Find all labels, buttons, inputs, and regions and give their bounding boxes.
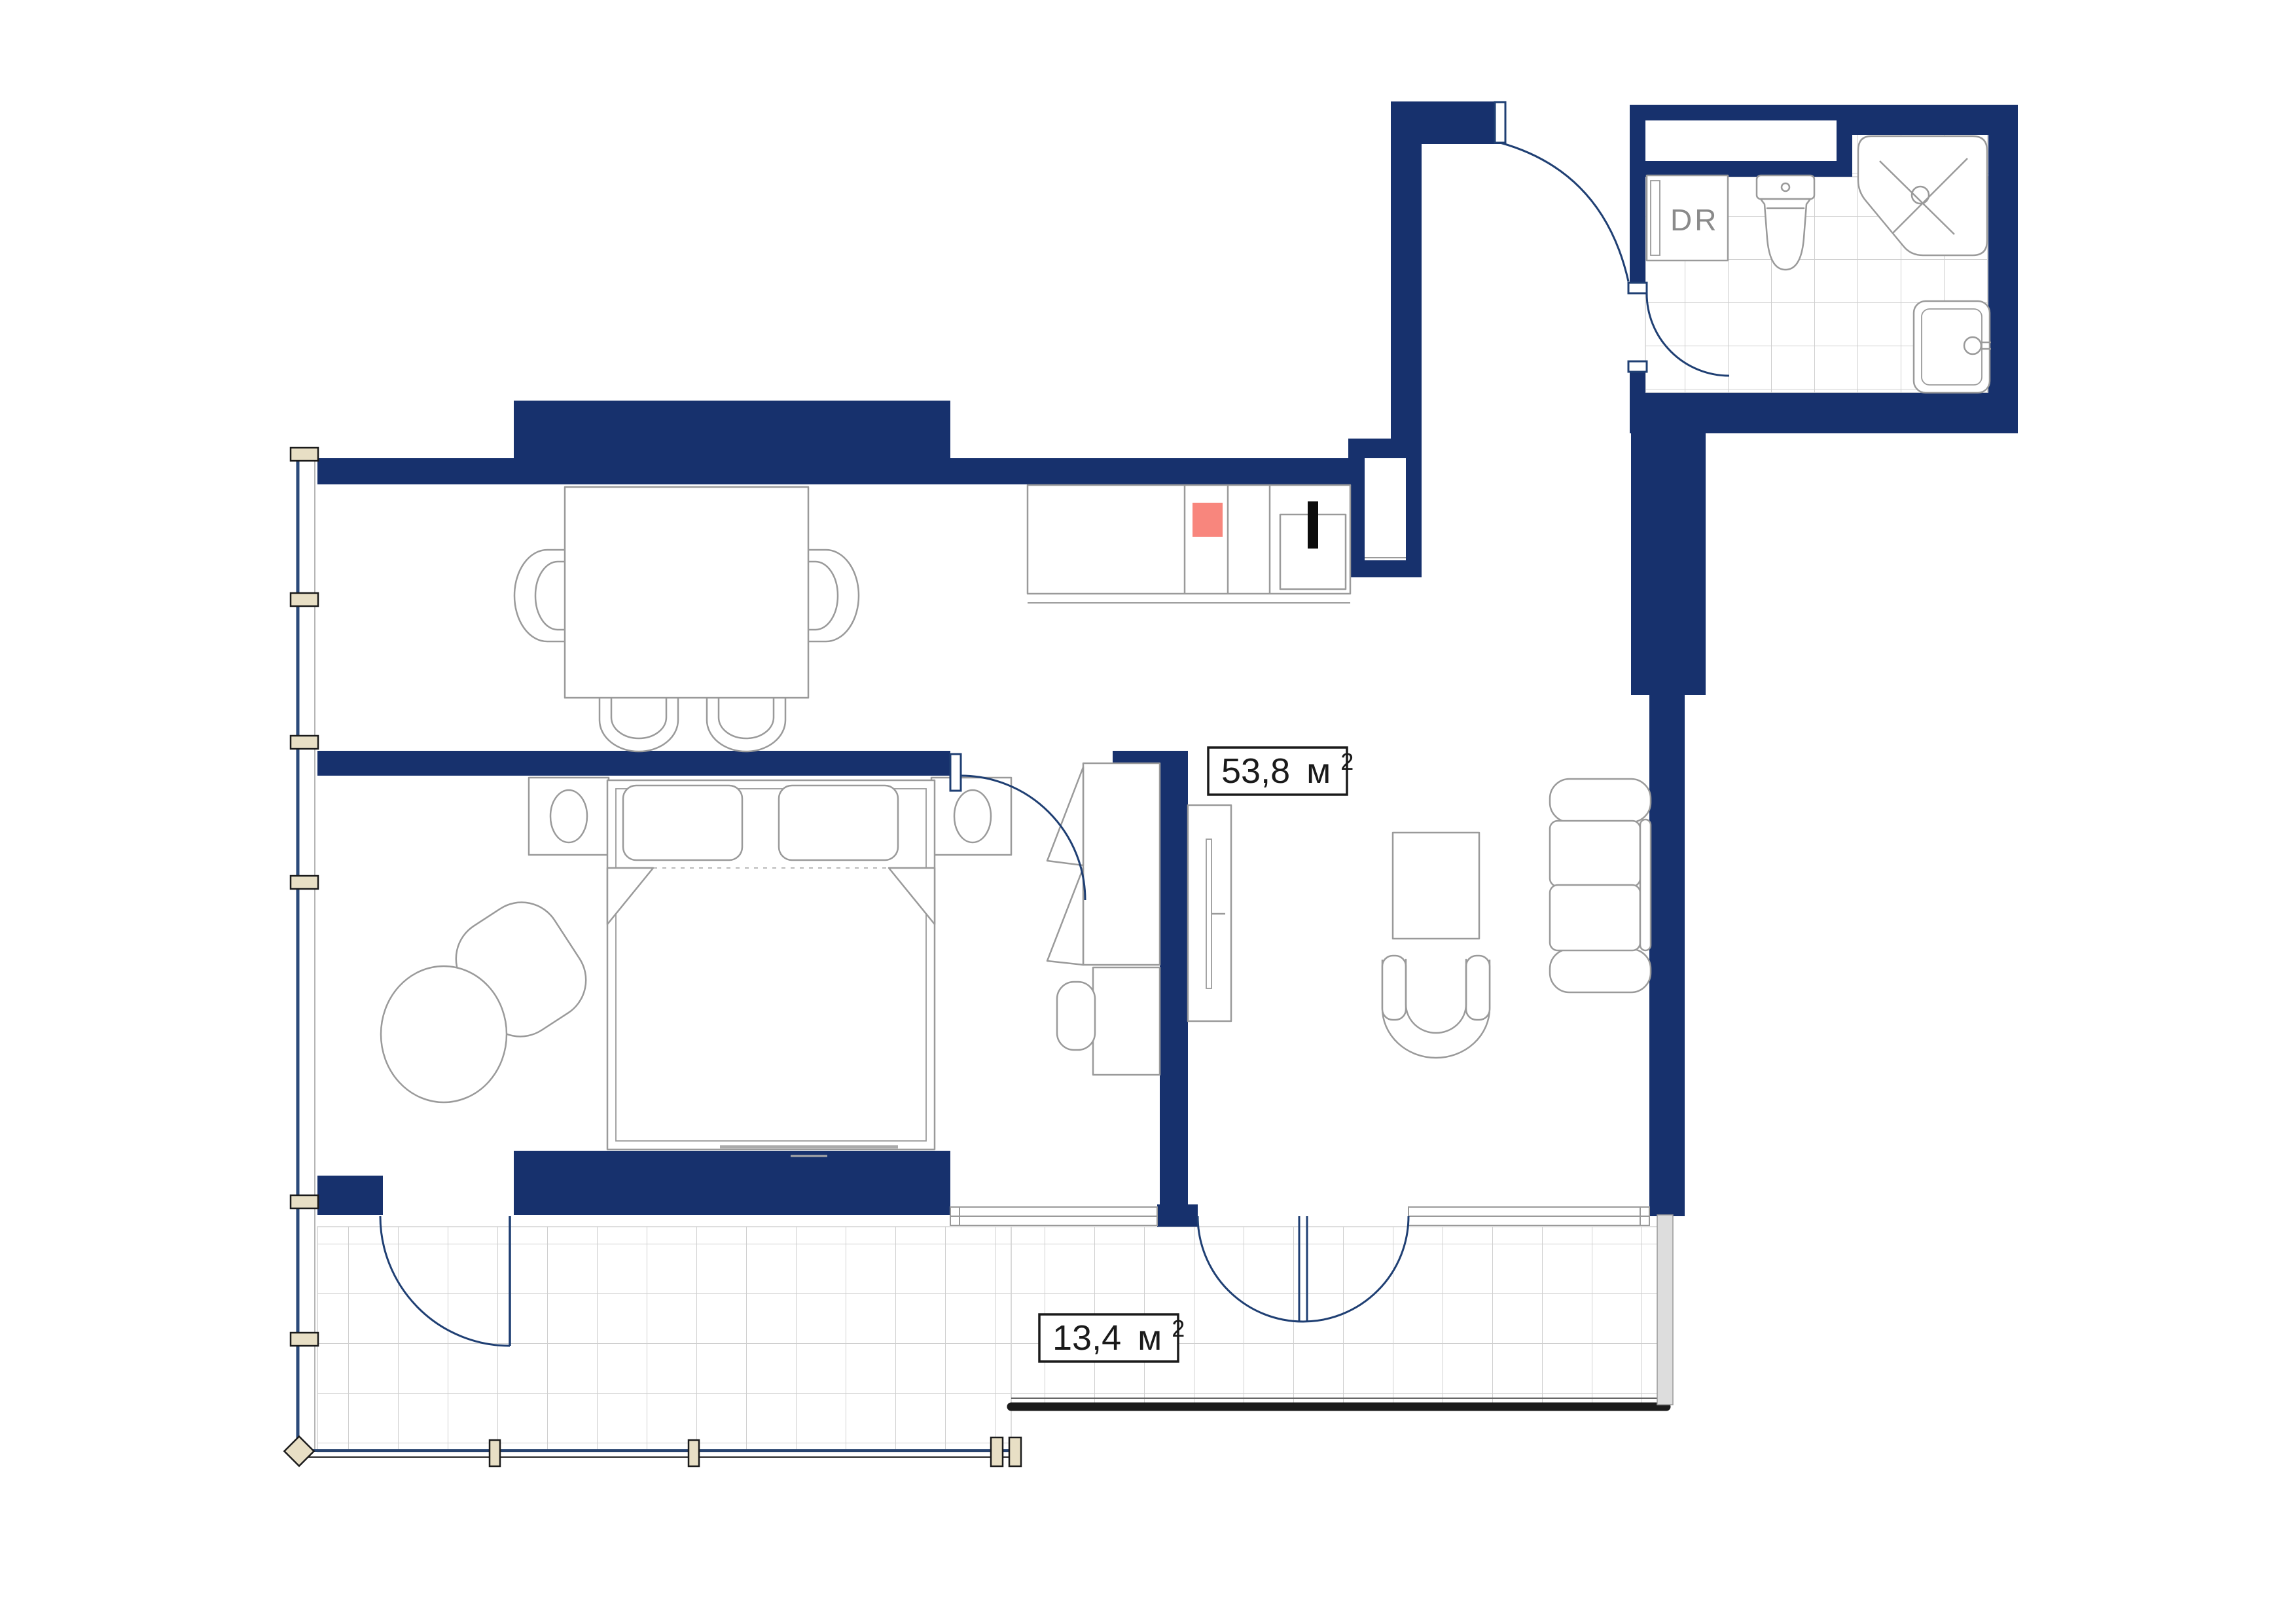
- wardrobe: [1047, 763, 1160, 965]
- wall-bath-bottom: [1630, 393, 2018, 433]
- main-area-value: 53,8: [1221, 751, 1290, 791]
- wall-bath-right: [1988, 105, 2018, 433]
- desk-chair: [1057, 982, 1095, 1050]
- pillow: [779, 785, 898, 860]
- wall-bath-left-stub: [1630, 372, 1645, 394]
- sink-faucet: [1308, 501, 1318, 549]
- mullion-post: [490, 1440, 500, 1466]
- mullion-post: [291, 1333, 318, 1346]
- wall-bedroom-divider: [1160, 751, 1188, 1206]
- shaft-niche: [1365, 458, 1406, 560]
- pillow: [623, 785, 742, 860]
- wall-living-right: [1649, 695, 1685, 1216]
- wall-divider-foot: [1157, 1204, 1198, 1227]
- mullion-post: [1009, 1437, 1021, 1466]
- area-label-main: 53,8 м 2: [1208, 748, 1354, 795]
- wall-kitchen-top: [317, 458, 1350, 484]
- mullion-post: [291, 593, 318, 606]
- svg-text:13,4 м 2: 13,4 м 2: [1052, 1315, 1185, 1358]
- wall-bath-niche-band: [1645, 161, 1837, 177]
- kitchen-counter: [1028, 485, 1350, 603]
- living-window-sill: [1408, 1207, 1649, 1225]
- bed: [607, 780, 935, 1149]
- balcony-area-unit: м: [1138, 1318, 1162, 1358]
- lounge-chair: [1382, 956, 1490, 1058]
- dr-label: DR: [1670, 203, 1719, 237]
- main-area-unit: м: [1306, 751, 1331, 791]
- wall-right-block: [1631, 433, 1706, 695]
- mullion-post: [689, 1440, 699, 1466]
- wall-bath-divider: [1837, 105, 1852, 177]
- wall-bedroom-top: [317, 751, 950, 776]
- wall-top-bump: [514, 401, 950, 461]
- cooktop-accent: [1193, 503, 1223, 537]
- bathroom-sink: [1914, 301, 1991, 393]
- mullion-post: [291, 448, 318, 461]
- balcony-tiles: [317, 1227, 1661, 1452]
- balcony-area-sup: 2: [1172, 1315, 1185, 1342]
- entrance-door: [1495, 102, 1628, 281]
- dining-table: [565, 487, 808, 698]
- mullion-post: [291, 1195, 318, 1208]
- tv-unit: [1188, 805, 1231, 1021]
- wall-bedroom-balcony: [514, 1151, 950, 1215]
- area-label-balcony: 13,4 м 2: [1039, 1314, 1185, 1362]
- main-area-sup: 2: [1340, 748, 1354, 775]
- desk: [1093, 967, 1160, 1075]
- sofa: [1550, 779, 1651, 992]
- armchair: [381, 888, 601, 1102]
- svg-text:53,8 м 2: 53,8 м 2: [1221, 748, 1354, 791]
- bedroom-window-sill: [950, 1207, 1157, 1225]
- left-glazing: [291, 448, 318, 1451]
- mullion-post: [291, 736, 318, 749]
- mullion-post: [991, 1437, 1003, 1466]
- balcony-glazing-right: [1657, 1215, 1673, 1405]
- mullion-post: [291, 876, 318, 889]
- corner-post: [284, 1436, 314, 1466]
- floor-plan: 53,8 м 2 13,4 м 2 DR: [0, 0, 2296, 1624]
- coffee-table: [1393, 833, 1479, 939]
- wall-bath-left: [1630, 105, 1645, 283]
- wall-balcony-stub-left: [317, 1176, 383, 1215]
- balcony-area-value: 13,4: [1052, 1318, 1121, 1358]
